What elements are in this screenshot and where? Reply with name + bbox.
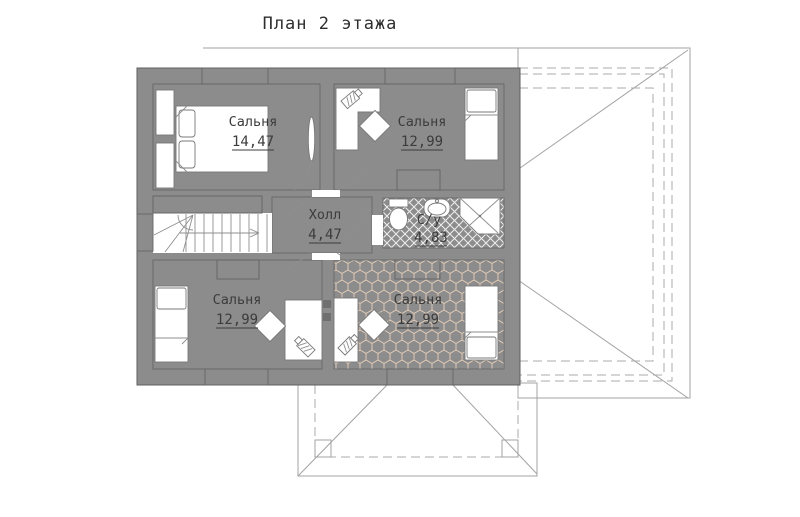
room-area: 14,47	[232, 134, 274, 150]
door-opening-top	[312, 190, 340, 197]
room-area: 4,47	[308, 227, 342, 243]
floor-plan-canvas: План 2 этажа Сальня 14,47 Сальня 12,99 Х…	[0, 0, 800, 517]
door-opening-bottom	[312, 253, 340, 260]
pillow	[179, 110, 195, 137]
nightstand	[156, 90, 174, 135]
shower	[460, 198, 500, 234]
room-label: Сальня	[213, 292, 262, 308]
page-title: План 2 этажа	[263, 14, 398, 34]
pillow	[467, 337, 496, 358]
room-area: 12,99	[397, 312, 439, 328]
nightstand	[156, 143, 174, 188]
pillow	[179, 141, 195, 168]
floor-plan-page: План 2 этажа Сальня 14,47 Сальня 12,99 Х…	[0, 0, 800, 517]
door-leaf-bedroom-top-left	[308, 117, 314, 161]
porch-roof-outline	[298, 383, 537, 476]
pillow	[157, 288, 186, 309]
room-area: 12,99	[401, 134, 443, 150]
wall-block	[323, 313, 331, 321]
toilet	[389, 199, 408, 230]
room-label: Сальня	[229, 114, 278, 130]
wall-block	[323, 300, 331, 308]
room-area: 12,99	[216, 312, 258, 328]
room-label: Сальня	[394, 292, 443, 308]
porch-post	[502, 440, 518, 457]
room-label: Сальня	[398, 114, 447, 130]
pillow	[467, 90, 496, 112]
room-area: 4,83	[414, 230, 448, 246]
room-label: С/у	[417, 212, 441, 228]
room-label: Холл	[309, 207, 342, 223]
door-opening-bathroom	[372, 215, 383, 245]
porch-post	[315, 440, 331, 457]
